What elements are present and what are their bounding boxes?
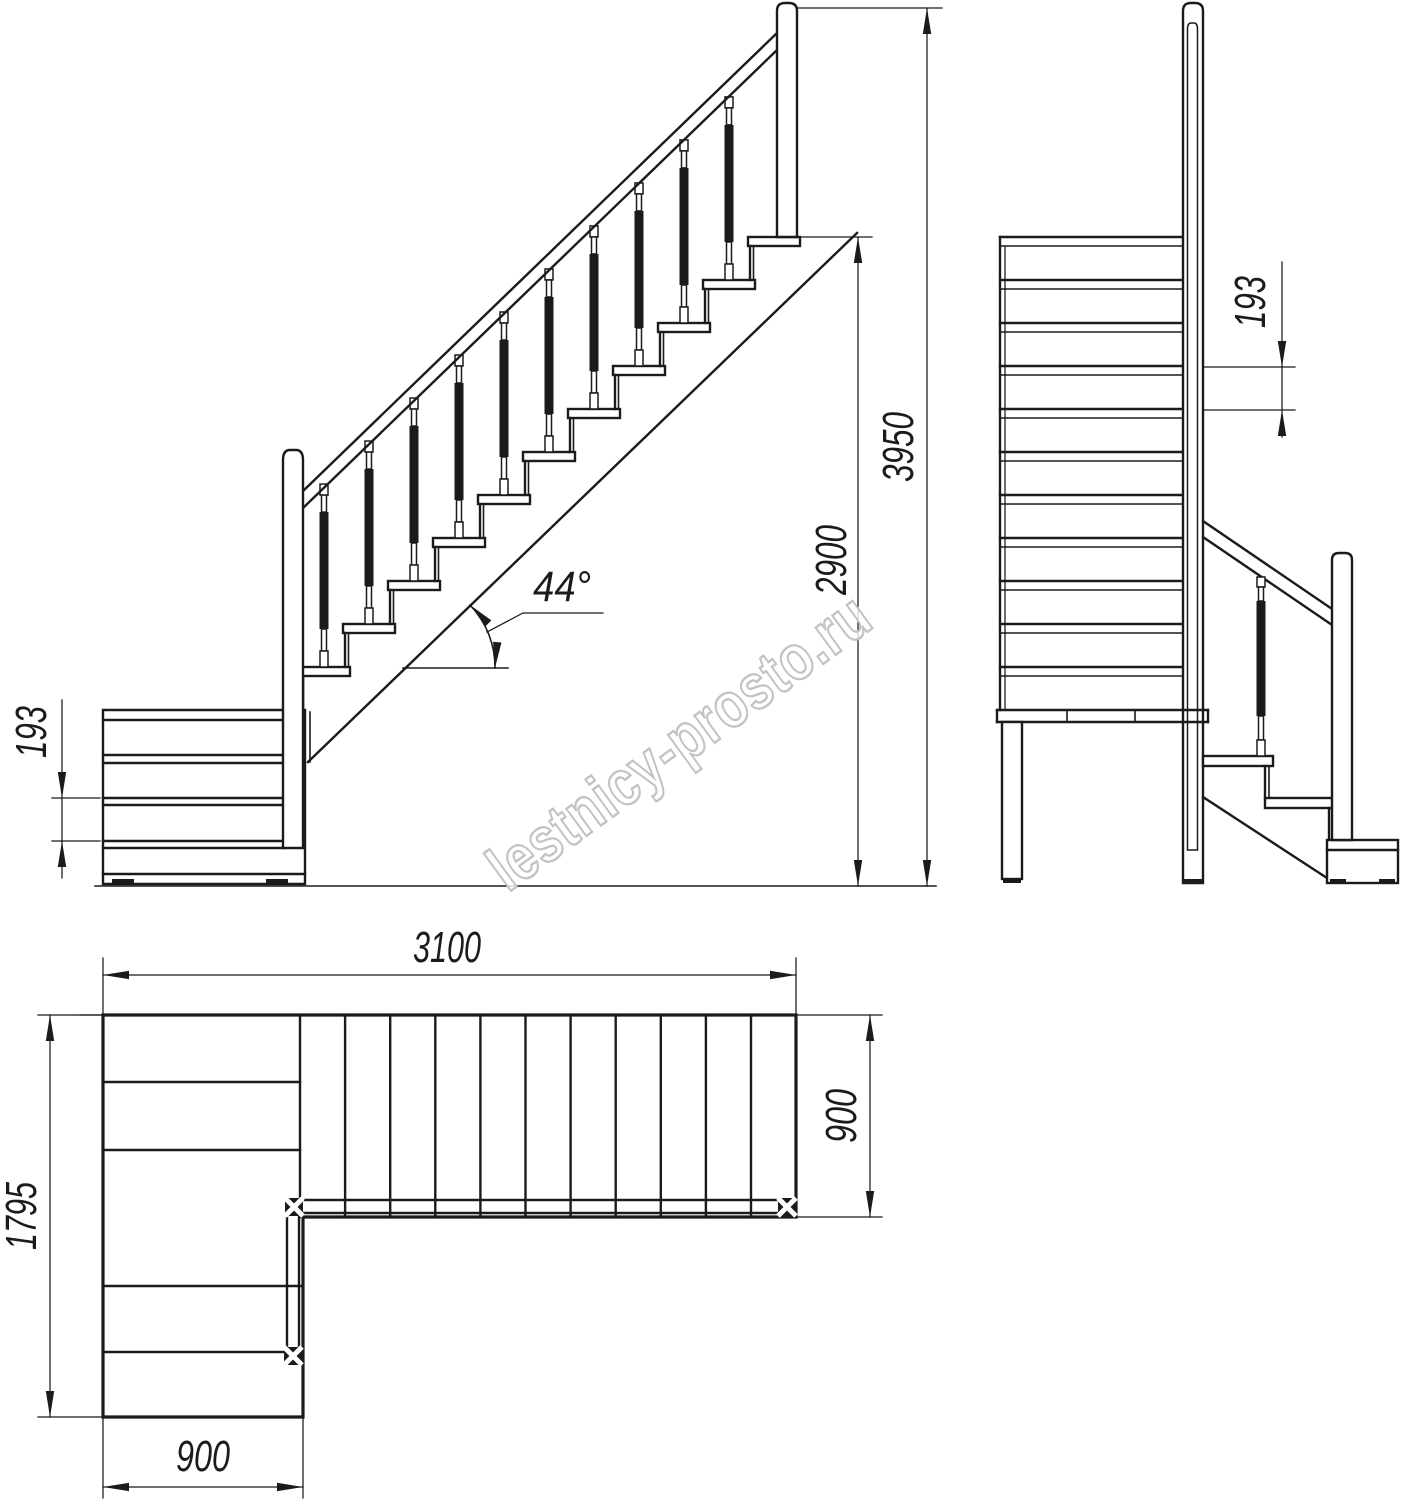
baluster-base: [590, 393, 598, 409]
newel-post-symbol: [284, 1347, 302, 1365]
baluster-rod: [680, 168, 689, 285]
baluster-neck: [322, 629, 327, 651]
flight-height-label: 2900: [807, 525, 856, 596]
baluster-neck: [502, 457, 507, 479]
baluster-neck: [457, 366, 462, 383]
tread: [1265, 798, 1337, 808]
baluster-neck: [322, 495, 327, 512]
baluster-neck: [547, 414, 552, 436]
foot-pad: [266, 879, 288, 884]
baluster-base: [680, 307, 688, 323]
baluster-neck: [682, 285, 687, 307]
slope-angle-label: 44°: [533, 563, 591, 611]
tread: [748, 237, 800, 246]
riser-height-label: 193: [7, 706, 56, 758]
baluster-rod: [455, 383, 464, 500]
baluster-neck: [1259, 587, 1264, 601]
drawing-page: 44° 193 2900 3950: [0, 0, 1405, 1500]
baluster-neck: [367, 586, 372, 608]
baluster-base: [455, 522, 463, 538]
baluster-neck: [457, 500, 462, 522]
baluster-base: [410, 565, 418, 581]
newel-post-symbol: [778, 1198, 796, 1216]
total-height-label: 3950: [874, 412, 923, 482]
foot-pad: [1003, 879, 1021, 883]
baluster-neck: [727, 108, 732, 125]
baluster-base: [320, 651, 328, 667]
lower-flight-width-label: 900: [176, 1432, 230, 1481]
baluster: [1257, 577, 1266, 756]
tread: [343, 624, 395, 633]
baluster-neck: [502, 323, 507, 340]
flight-width-label: 900: [817, 1089, 866, 1143]
baluster-rod: [635, 211, 644, 328]
baluster-neck: [637, 328, 642, 350]
baluster-rod: [590, 254, 599, 371]
tread: [613, 366, 665, 375]
riser-height-label: 193: [1226, 276, 1275, 328]
tread: [388, 581, 440, 590]
bottom-newel-post: [1332, 553, 1352, 840]
baluster-base: [545, 436, 553, 452]
baluster-neck: [637, 194, 642, 211]
baluster-neck: [727, 242, 732, 264]
middle-newel-post: [283, 450, 303, 848]
baluster-neck: [592, 237, 597, 254]
landing-leg: [1002, 722, 1022, 879]
handrail-edge-on: [1188, 23, 1198, 850]
baluster-neck: [412, 409, 417, 426]
baluster-neck: [367, 452, 372, 469]
baluster-rod: [500, 340, 509, 457]
tread: [433, 538, 485, 547]
newel-post-symbol: [285, 1198, 303, 1216]
baluster-rod: [545, 297, 554, 414]
baluster-neck: [412, 543, 417, 565]
baluster-rod: [410, 426, 419, 543]
tread: [568, 409, 620, 418]
flight-length-label: 3100: [413, 923, 481, 972]
foot-pad: [112, 879, 134, 884]
tread: [523, 452, 575, 461]
top-newel-post: [777, 3, 797, 237]
baluster-neck: [682, 151, 687, 168]
foot-pad: [1379, 879, 1395, 883]
tread: [703, 280, 755, 289]
baluster-rod: [320, 512, 329, 629]
baluster-rod: [1257, 601, 1266, 716]
staircase-technical-drawing: 44° 193 2900 3950: [0, 0, 1405, 1500]
baluster-base: [725, 264, 733, 280]
baluster-base: [365, 608, 373, 624]
tread: [1203, 756, 1273, 766]
baluster-base: [1257, 740, 1265, 756]
bottom-step-block: [1327, 840, 1398, 883]
foot-pad: [1330, 879, 1346, 883]
tread: [478, 495, 530, 504]
baluster-neck: [547, 280, 552, 297]
baluster-rod: [365, 469, 374, 586]
total-depth-label: 1795: [0, 1182, 46, 1250]
baluster-neck: [592, 371, 597, 393]
foot-pad: [1184, 879, 1202, 883]
baluster-neck: [1259, 716, 1264, 740]
tread: [298, 667, 350, 676]
baluster-base: [500, 479, 508, 495]
baluster-base: [635, 350, 643, 366]
baluster-cap: [1257, 577, 1265, 587]
baluster-rod: [725, 125, 734, 242]
tread: [658, 323, 710, 332]
